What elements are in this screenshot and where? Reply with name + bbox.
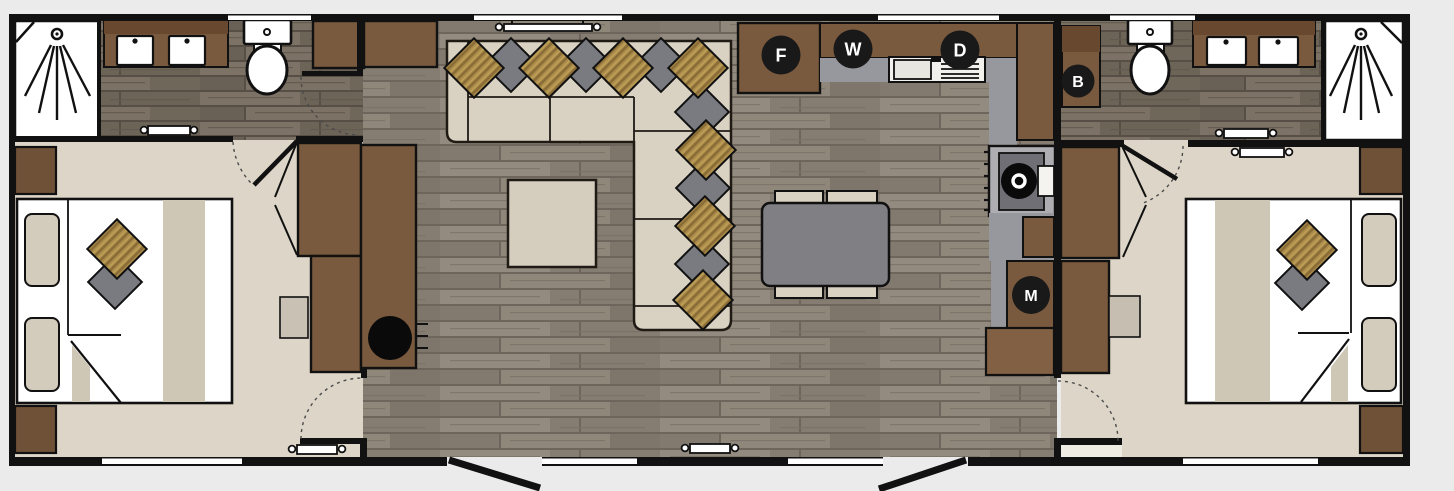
svg-text:M: M bbox=[1024, 288, 1037, 305]
svg-text:B: B bbox=[1072, 74, 1084, 91]
svg-text:F: F bbox=[776, 46, 787, 66]
svg-text:W: W bbox=[845, 40, 862, 60]
svg-text:D: D bbox=[954, 41, 967, 61]
